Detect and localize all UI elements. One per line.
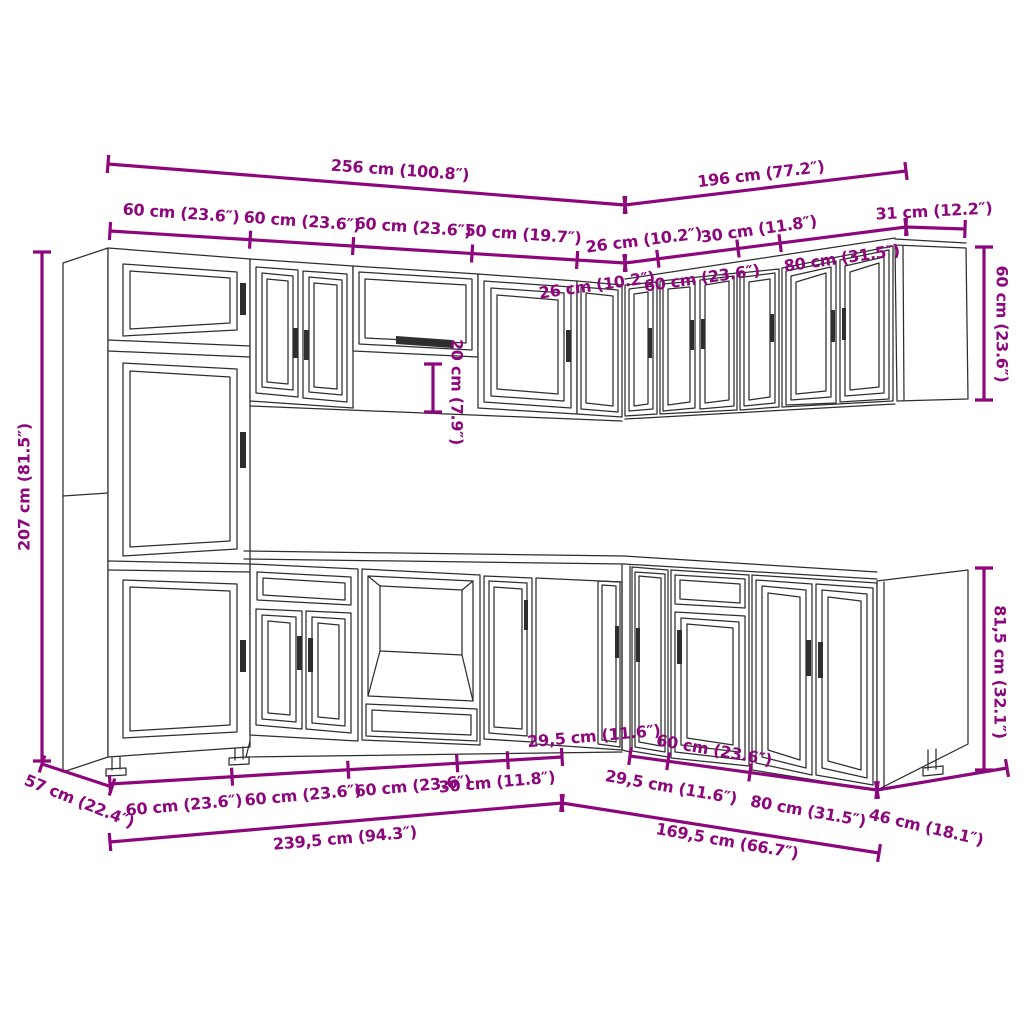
dimension-label-base-seg-80-right: 80 cm (31.5″) bbox=[749, 792, 867, 831]
dimension-label-gap-20: 20 cm (7.9″) bbox=[448, 339, 467, 445]
door-handle bbox=[240, 283, 246, 315]
dimension-label-wall-seg-60b: 60 cm (23.6″) bbox=[243, 207, 361, 234]
door-handle bbox=[566, 330, 571, 362]
dimension-line bbox=[232, 768, 233, 786]
door-handle bbox=[240, 640, 246, 672]
dimension-label-wall-seg-50: 50 cm (19.7″) bbox=[464, 220, 582, 247]
base-cabinets bbox=[244, 551, 968, 790]
door-handle bbox=[677, 630, 682, 664]
door-handle bbox=[240, 432, 246, 468]
door-handle bbox=[304, 330, 309, 360]
dimension-line bbox=[779, 234, 781, 252]
dimension-line bbox=[457, 754, 458, 772]
door-handle bbox=[308, 638, 313, 672]
door-handle bbox=[636, 628, 640, 662]
dimension-line bbox=[353, 237, 354, 255]
dimension-line bbox=[657, 250, 659, 268]
dimension-line bbox=[737, 240, 739, 258]
base-end-panel bbox=[877, 570, 968, 790]
dimension-line bbox=[906, 227, 965, 229]
dimension-line bbox=[577, 251, 578, 269]
door-handle bbox=[818, 642, 823, 678]
door-handle bbox=[770, 314, 774, 342]
cabinet-leg bbox=[106, 757, 126, 776]
dimension-label-base-seg-60a: 60 cm (23.6″) bbox=[125, 790, 243, 819]
door-handle bbox=[842, 308, 846, 340]
dimension-label-total-top-left: 256 cm (100.8″) bbox=[330, 156, 470, 185]
door-handle bbox=[690, 320, 694, 350]
dimension-line bbox=[471, 245, 472, 263]
door-handle bbox=[615, 626, 619, 658]
dimension-line bbox=[507, 751, 508, 769]
tall-cabinet bbox=[63, 248, 250, 776]
dimension-label-total-top-right: 196 cm (77.2″) bbox=[696, 157, 825, 191]
dimension-label-height-total-207: 207 cm (81.5″) bbox=[15, 423, 34, 551]
dimension-label-end-depth-31: 31 cm (12.2″) bbox=[875, 198, 993, 223]
dimension-line bbox=[109, 222, 110, 240]
door-handle bbox=[293, 328, 298, 358]
dimension-line bbox=[250, 231, 251, 249]
dimension-line bbox=[1005, 759, 1008, 777]
door-handle bbox=[806, 640, 811, 676]
dimension-line bbox=[624, 254, 626, 272]
dimension-line bbox=[109, 833, 111, 851]
dimension-line bbox=[561, 748, 562, 766]
door-handle bbox=[701, 319, 705, 349]
dimension-label-wall-seg-26-right: 26 cm (10.2″) bbox=[585, 223, 703, 256]
dimension-label-base-height-815: 81,5 cm (32.1″) bbox=[991, 605, 1010, 739]
dimension-label-base-seg-295-right: 29,5 cm (11.6″) bbox=[604, 766, 739, 808]
dimension-label-wall-height-60: 60 cm (23.6″) bbox=[993, 266, 1012, 383]
dimension-line bbox=[107, 155, 108, 173]
dimension-line bbox=[965, 220, 966, 238]
diagram-canvas: 256 cm (100.8″)196 cm (77.2″)60 cm (23.6… bbox=[0, 0, 1024, 1024]
dimension-label-base-total-right: 169,5 cm (66.7″) bbox=[654, 819, 799, 863]
dimension-line bbox=[348, 761, 349, 779]
door-handle bbox=[297, 636, 302, 670]
dimension-label-wall-seg-60c: 60 cm (23.6″) bbox=[354, 213, 472, 240]
kitchen-dimension-diagram: 256 cm (100.8″)196 cm (77.2″)60 cm (23.6… bbox=[0, 0, 1024, 1024]
door-handle bbox=[831, 310, 835, 342]
dimension-label-wall-seg-60a: 60 cm (23.6″) bbox=[122, 199, 240, 226]
dimension-label-base-seg-60b: 60 cm (23.6″) bbox=[244, 780, 362, 809]
dimension-line bbox=[624, 196, 626, 214]
dimension-line bbox=[878, 844, 881, 862]
wall-end-panel bbox=[895, 245, 968, 401]
door-handle bbox=[524, 600, 528, 630]
dimension-label-depth-46: 46 cm (18.1″) bbox=[867, 805, 985, 850]
dimension-line bbox=[905, 162, 907, 180]
door-handle bbox=[648, 328, 652, 358]
countertop-left bbox=[244, 551, 624, 564]
dimension-line bbox=[629, 747, 631, 765]
dimension-line bbox=[109, 775, 110, 793]
dimension-label-depth-57: 57 cm (22.4″) bbox=[22, 770, 138, 831]
